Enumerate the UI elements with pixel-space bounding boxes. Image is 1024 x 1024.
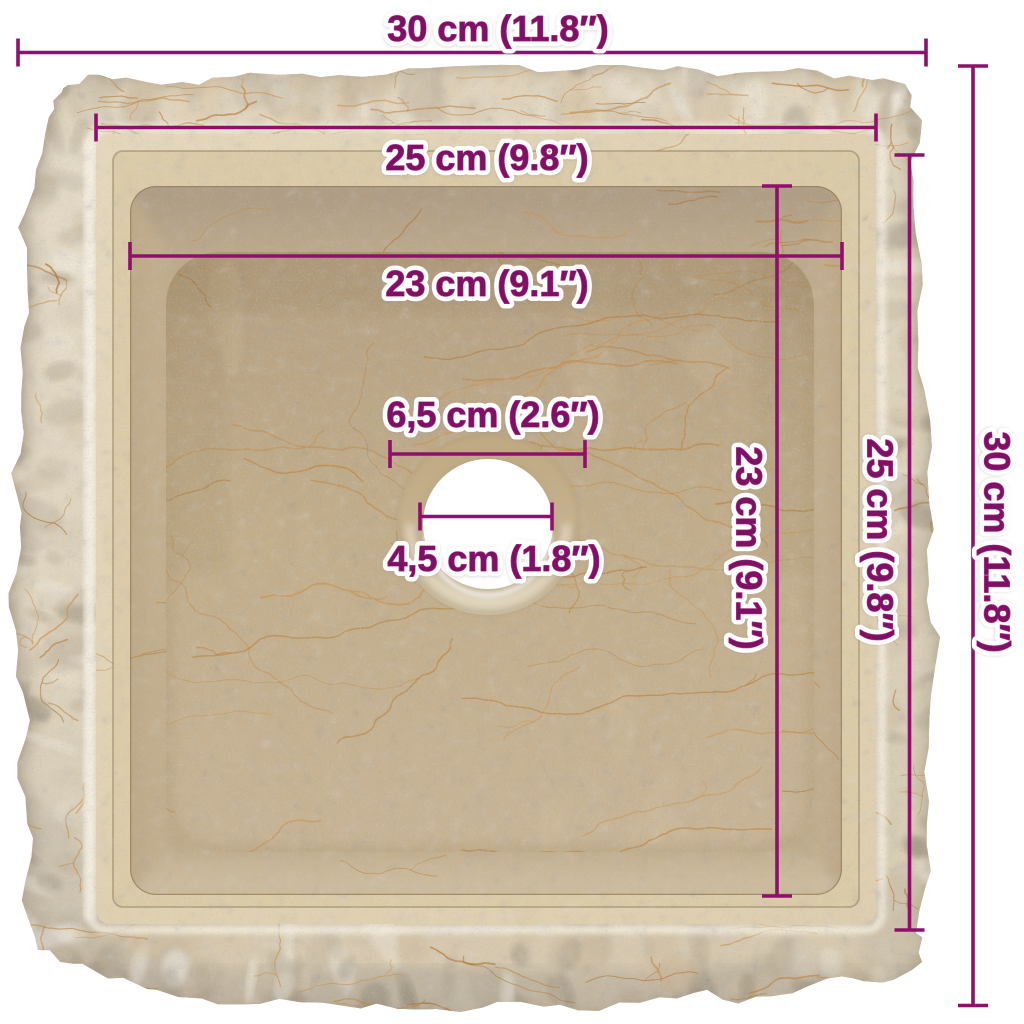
svg-text:23 cm (9.1″): 23 cm (9.1″) <box>385 263 588 304</box>
svg-text:30 cm (11.8″): 30 cm (11.8″) <box>977 431 1018 652</box>
svg-text:4,5 cm (1.8″): 4,5 cm (1.8″) <box>387 538 600 579</box>
svg-text:25 cm (9.8″): 25 cm (9.8″) <box>860 438 901 641</box>
svg-text:25 cm (9.8″): 25 cm (9.8″) <box>385 137 588 178</box>
svg-text:30 cm (11.8″): 30 cm (11.8″) <box>387 8 608 49</box>
svg-text:23 cm (9.1″): 23 cm (9.1″) <box>729 446 770 649</box>
svg-text:6,5 cm (2.6″): 6,5 cm (2.6″) <box>386 394 599 435</box>
